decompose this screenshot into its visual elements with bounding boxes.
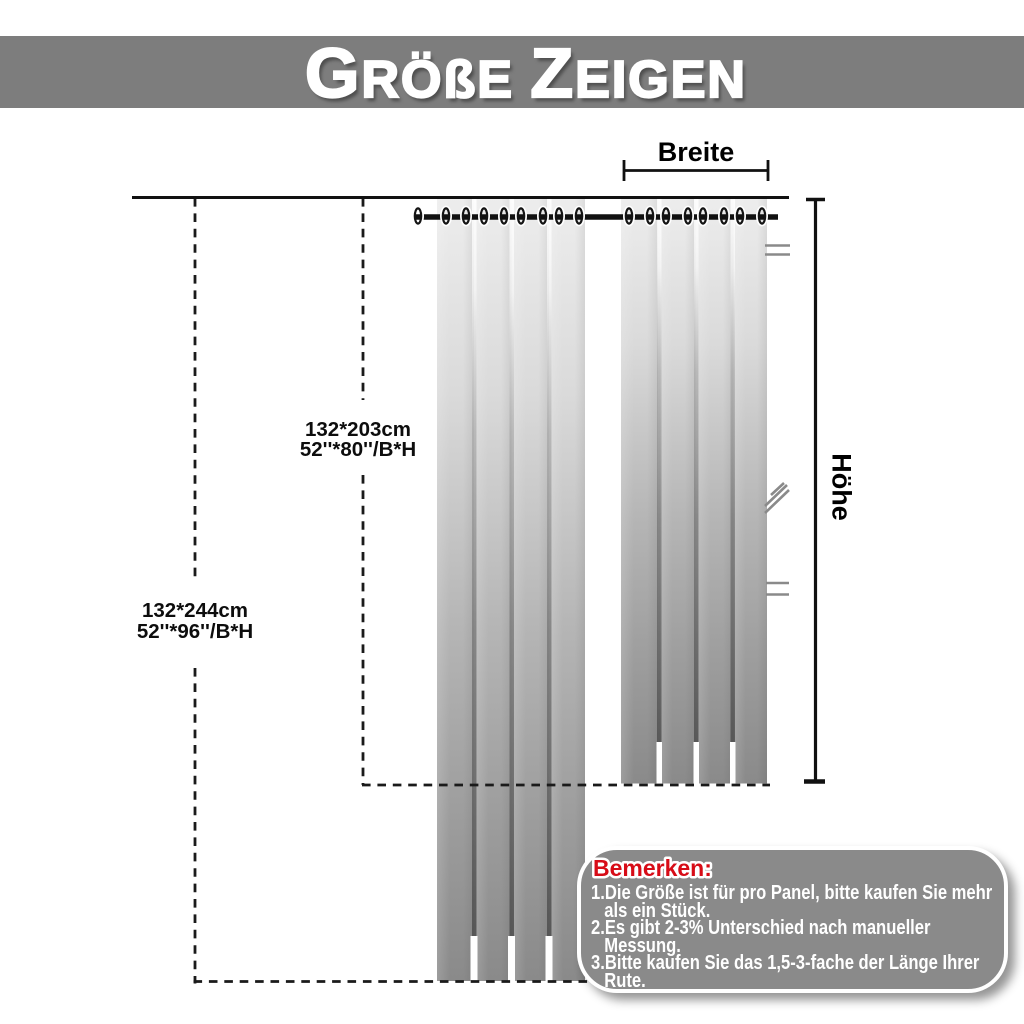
svg-text:Bemerken:: Bemerken: [593,855,712,881]
svg-text:52''*80''/B*H: 52''*80''/B*H [300,438,416,461]
svg-text:52''*96''/B*H: 52''*96''/B*H [137,620,253,643]
svg-text:Breite: Breite [658,137,735,167]
svg-text:Höhe: Höhe [827,453,857,521]
svg-text:132*244cm: 132*244cm [142,599,248,622]
